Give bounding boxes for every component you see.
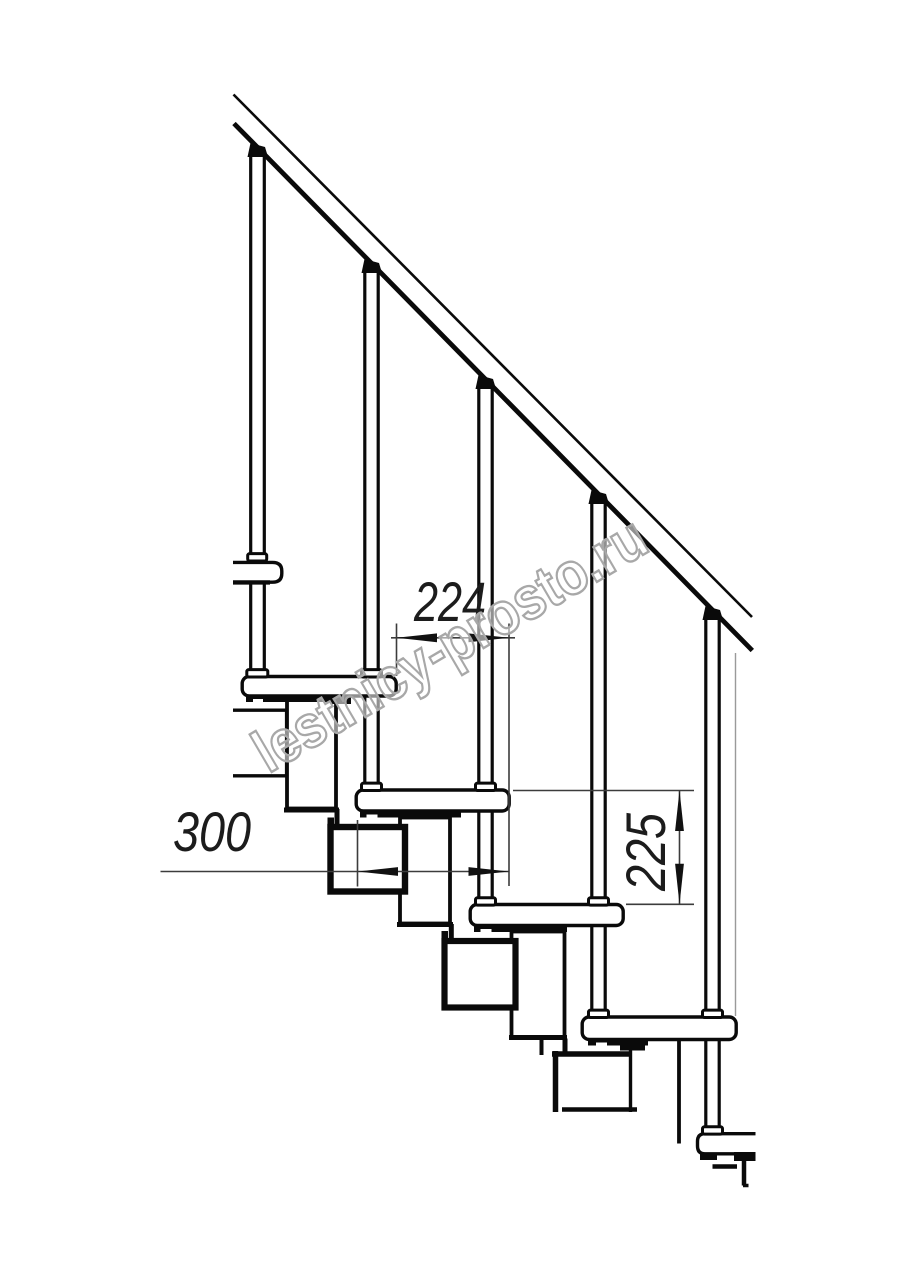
svg-text:lestnicy-prosto.ru: lestnicy-prosto.ru — [241, 503, 658, 785]
svg-text:225: 225 — [614, 812, 677, 892]
svg-text:300: 300 — [173, 800, 251, 863]
